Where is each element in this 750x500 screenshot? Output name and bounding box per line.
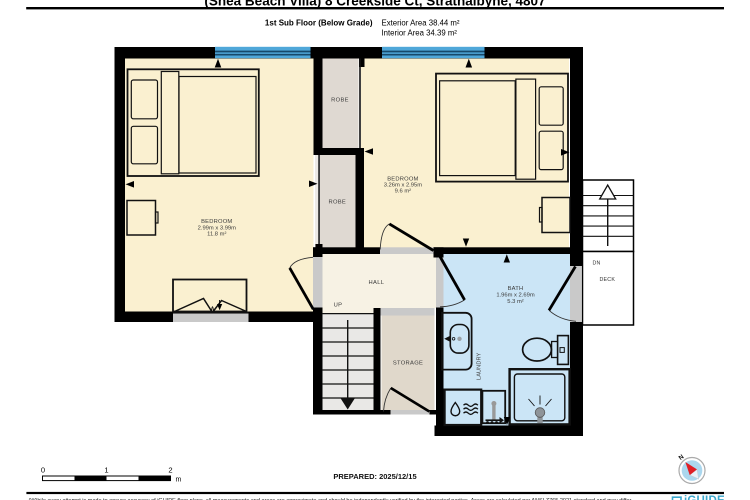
svg-text:DECK: DECK [600,277,616,283]
svg-text:BATH: BATH [508,286,524,292]
svg-text:1st Sub Floor (Below Grade): 1st Sub Floor (Below Grade) [265,18,373,27]
svg-text:m: m [176,476,182,483]
svg-text:1: 1 [104,466,108,475]
svg-text:iGUIDE: iGUIDE [684,495,725,500]
svg-text:1.96m x 2.69m: 1.96m x 2.69m [496,293,535,299]
svg-text:ROBE: ROBE [331,97,349,103]
svg-text:UP: UP [334,302,343,308]
svg-text:HALL: HALL [369,280,385,286]
svg-text:BEDROOM: BEDROOM [201,219,232,225]
svg-text:2.99m x 3.99m: 2.99m x 3.99m [198,225,237,231]
svg-text:BEDROOM: BEDROOM [387,176,418,182]
svg-text:LAUNDRY: LAUNDRY [477,353,483,380]
svg-text:Interior Area 34.39 m²: Interior Area 34.39 m² [382,28,458,37]
svg-text:0: 0 [41,466,45,475]
svg-text:5.3 m²: 5.3 m² [507,299,523,305]
svg-text:PREPARED: 2025/12/15: PREPARED: 2025/12/15 [333,472,416,481]
svg-text:2: 2 [168,466,172,475]
svg-text:11.8 m²: 11.8 m² [207,231,226,237]
svg-text:DN: DN [592,261,600,267]
svg-text:Exterior Area 38.44 m²: Exterior Area 38.44 m² [382,18,460,27]
svg-text:9.6 m²: 9.6 m² [395,189,411,195]
svg-text:(Shea Beach Villa) 8 Creekside: (Shea Beach Villa) 8 Creekside Ct, Strat… [204,0,545,9]
svg-text:ROBE: ROBE [328,200,346,206]
svg-text:STORAGE: STORAGE [393,360,423,366]
